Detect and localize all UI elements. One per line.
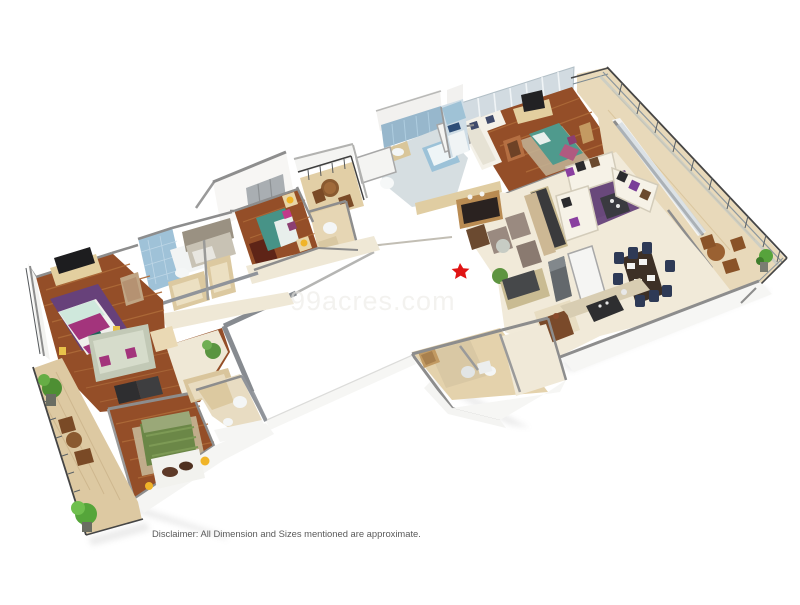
svg-text:Disclaimer: All Dimension and: Disclaimer: All Dimension and Sizes ment… xyxy=(152,528,421,539)
svg-text:99acres.com: 99acres.com xyxy=(290,286,456,316)
